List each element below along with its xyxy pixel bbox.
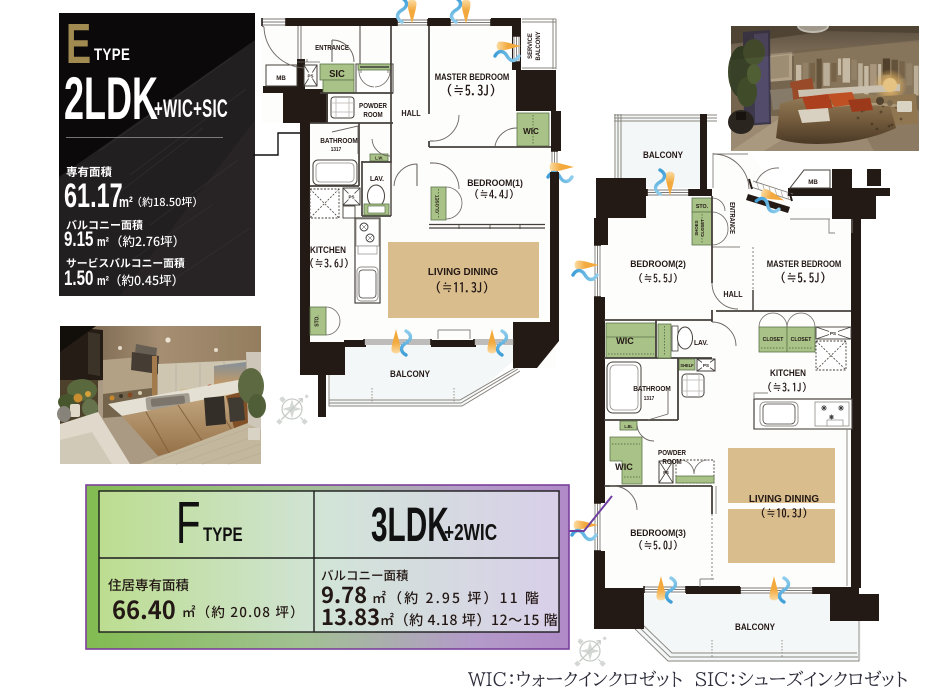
- svg-text:BEDROOM(1): BEDROOM(1): [467, 178, 523, 188]
- svg-text:BALCONY: BALCONY: [390, 369, 430, 380]
- svg-text:MASTER BEDROOM: MASTER BEDROOM: [435, 71, 510, 82]
- svg-text:61.17: 61.17: [64, 178, 123, 215]
- svg-text:F: F: [176, 489, 201, 556]
- svg-text:STO.: STO.: [314, 315, 320, 327]
- svg-text:m²: m²: [97, 275, 109, 289]
- svg-text:ROOM: ROOM: [662, 459, 682, 467]
- svg-text:KITCHEN: KITCHEN: [310, 245, 346, 256]
- svg-text:LAV.: LAV.: [370, 176, 384, 183]
- svg-text:STO.: STO.: [696, 204, 709, 210]
- svg-text:LIVING DINING: LIVING DINING: [428, 267, 498, 278]
- svg-text:SHOES: SHOES: [694, 220, 699, 235]
- svg-text:3LDK: 3LDK: [371, 499, 449, 552]
- svg-text:LIVING DINING: LIVING DINING: [749, 494, 819, 505]
- svg-text:SHELF: SHELF: [680, 363, 694, 368]
- svg-text:1317: 1317: [644, 396, 655, 402]
- svg-text:1317: 1317: [331, 147, 342, 153]
- svg-text:9.15: 9.15: [64, 226, 93, 250]
- svg-text:MB: MB: [276, 75, 286, 82]
- svg-text:SIC: SIC: [329, 69, 345, 80]
- svg-text:CLOSET: CLOSET: [434, 195, 439, 213]
- svg-text:MASTER BEDROOM: MASTER BEDROOM: [767, 258, 842, 269]
- svg-text:KITCHEN: KITCHEN: [770, 368, 806, 379]
- svg-text:POWDER: POWDER: [359, 103, 387, 111]
- svg-text:m²: m²: [97, 236, 109, 250]
- svg-text:PS: PS: [663, 470, 669, 475]
- svg-text:CLOSET: CLOSET: [791, 337, 812, 343]
- svg-text:HALL: HALL: [401, 109, 421, 118]
- svg-text:LAV.: LAV.: [694, 340, 708, 347]
- svg-text:PS: PS: [830, 331, 836, 336]
- svg-text:BEDROOM(3): BEDROOM(3): [630, 528, 686, 538]
- svg-text:BALCONY: BALCONY: [735, 622, 775, 633]
- svg-text:1.50: 1.50: [64, 265, 93, 289]
- svg-text:BALCONY: BALCONY: [643, 150, 683, 161]
- svg-text:+2WIC: +2WIC: [444, 521, 497, 546]
- svg-text:WIC: WIC: [615, 462, 633, 472]
- svg-text:ROOM: ROOM: [363, 112, 383, 120]
- svg-text:BATHROOM: BATHROOM: [320, 138, 358, 146]
- svg-text:PS: PS: [703, 363, 709, 368]
- svg-text:HALL: HALL: [723, 290, 743, 299]
- svg-text:BATHROOM: BATHROOM: [633, 386, 671, 394]
- svg-text:+WIC+SIC: +WIC+SIC: [154, 95, 228, 123]
- svg-text:m²: m²: [119, 193, 133, 210]
- svg-text:ENTRANCE: ENTRANCE: [728, 202, 736, 234]
- svg-text:CLOSET: CLOSET: [763, 337, 784, 343]
- svg-text:TYPE: TYPE: [203, 523, 243, 545]
- svg-text:SERVICE: SERVICE: [528, 33, 534, 59]
- svg-text:PS: PS: [307, 74, 313, 79]
- svg-text:BALCONY: BALCONY: [536, 31, 542, 60]
- svg-text:POWDER: POWDER: [658, 450, 686, 458]
- svg-text:WIC: WIC: [523, 126, 539, 136]
- svg-text:L.W.: L.W.: [375, 155, 383, 160]
- svg-text:MB: MB: [808, 179, 818, 186]
- svg-text:PS: PS: [348, 195, 354, 200]
- svg-text:L.BL: L.BL: [624, 424, 633, 429]
- svg-text:CLOSET: CLOSET: [700, 219, 705, 237]
- svg-text:BEDROOM(2): BEDROOM(2): [630, 259, 686, 269]
- svg-text:TYPE: TYPE: [94, 46, 130, 65]
- svg-text:2LDK: 2LDK: [64, 66, 158, 133]
